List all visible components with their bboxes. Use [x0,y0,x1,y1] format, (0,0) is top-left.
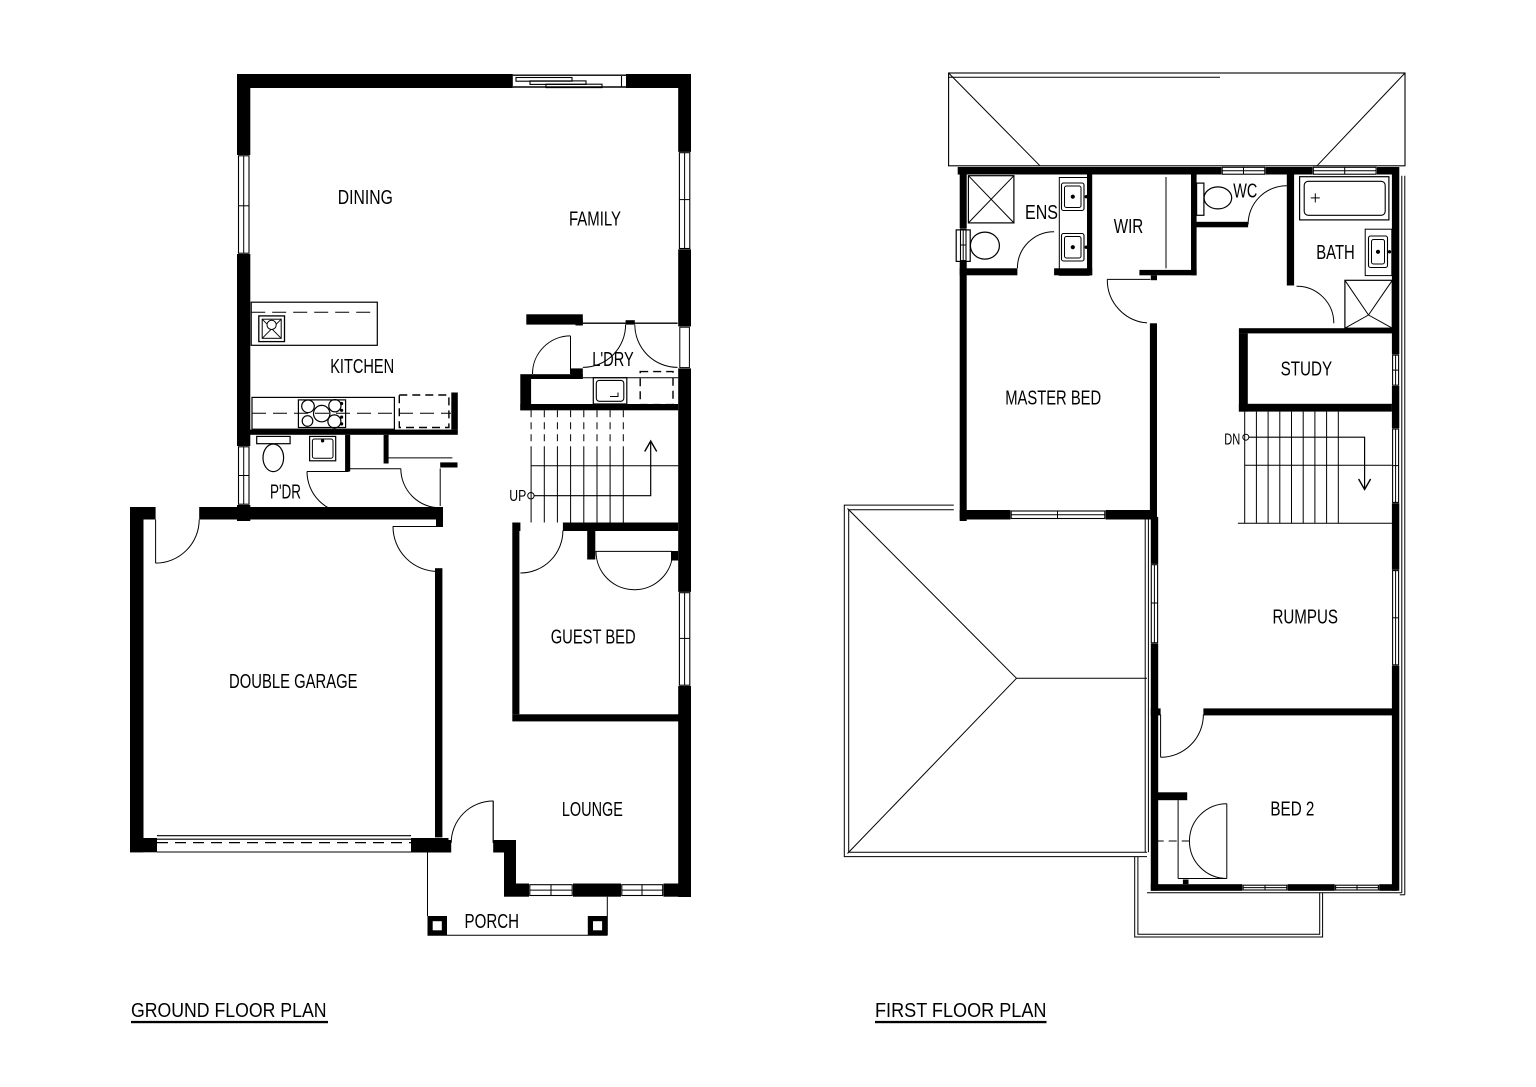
svg-text:WC: WC [1233,180,1257,203]
svg-text:FIRST FLOOR PLAN: FIRST FLOOR PLAN [875,999,1047,1022]
svg-text:DOUBLE GARAGE: DOUBLE GARAGE [229,670,358,693]
svg-text:MASTER BED: MASTER BED [1005,387,1101,410]
svg-text:BATH: BATH [1316,241,1355,264]
svg-text:KITCHEN: KITCHEN [330,355,394,378]
svg-text:L'DRY: L'DRY [592,348,634,371]
svg-text:FAMILY: FAMILY [569,207,621,230]
svg-text:PORCH: PORCH [465,910,520,933]
svg-text:STUDY: STUDY [1281,357,1333,380]
svg-text:UP: UP [509,488,526,505]
svg-text:DN: DN [1224,431,1240,448]
svg-text:RUMPUS: RUMPUS [1272,605,1338,628]
svg-text:LOUNGE: LOUNGE [562,798,623,821]
svg-text:DINING: DINING [338,186,393,209]
svg-text:P'DR: P'DR [270,481,301,504]
svg-text:GUEST BED: GUEST BED [551,626,636,649]
svg-text:WIR: WIR [1114,215,1144,238]
svg-text:BED 2: BED 2 [1270,797,1314,820]
svg-text:ENS: ENS [1025,201,1058,224]
svg-text:GROUND FLOOR PLAN: GROUND FLOOR PLAN [131,999,327,1022]
